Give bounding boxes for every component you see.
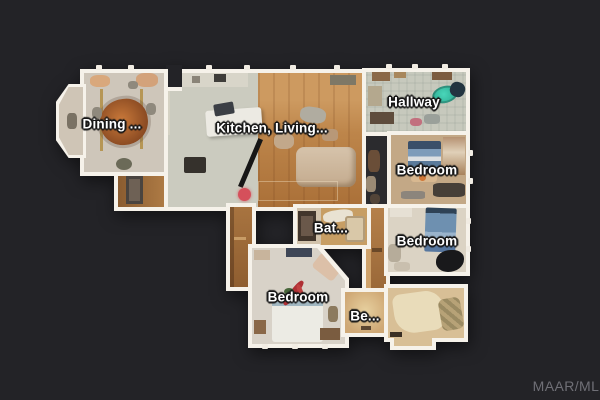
room-label-bedroom-mid-right[interactable]: Bedroom	[397, 234, 458, 249]
chair	[328, 306, 338, 322]
rug	[391, 289, 446, 336]
peach-rug	[90, 75, 110, 87]
chair	[146, 103, 156, 115]
floorplan: Dining ... Kitchen, Living... Hallway Be…	[0, 0, 600, 400]
stove	[184, 157, 206, 173]
window-tick	[96, 65, 102, 70]
threshold	[372, 248, 382, 252]
window-tick	[412, 64, 418, 69]
window-tick	[468, 150, 473, 156]
window-tick	[442, 64, 448, 69]
gray-item	[424, 114, 440, 124]
peach-rug	[136, 73, 158, 87]
debris	[368, 150, 380, 172]
window-tick	[262, 344, 268, 349]
cabinet	[368, 86, 382, 106]
window-tick	[128, 65, 134, 70]
kitchen-floor	[162, 73, 258, 207]
window-tick	[322, 344, 328, 349]
window-tick	[244, 65, 250, 70]
shelf	[394, 72, 406, 78]
bottom-right-room-stub	[390, 338, 436, 350]
window-tick	[206, 65, 212, 70]
window-tick	[292, 344, 298, 349]
corridor-shadow	[230, 207, 234, 287]
debris	[370, 194, 380, 204]
watermark: MAAR/MLS	[533, 378, 600, 394]
bay-floor	[59, 87, 83, 155]
window-tick	[468, 178, 473, 184]
rug-outline	[258, 181, 338, 201]
runner	[401, 191, 425, 199]
threshold	[361, 326, 371, 330]
pink-item	[410, 118, 422, 126]
window-tick	[466, 246, 471, 252]
dining-bay-window[interactable]	[56, 84, 86, 158]
room-label-hallway[interactable]: Hallway	[388, 95, 440, 110]
vanity-top	[301, 216, 313, 236]
appliance	[214, 74, 226, 82]
wall-notch	[166, 65, 182, 91]
chair	[128, 81, 138, 89]
floorplan-view: Dining ... Kitchen, Living... Hallway Be…	[0, 0, 600, 400]
debris	[366, 176, 376, 192]
room-label-bedroom-partial[interactable]: Be...	[350, 309, 380, 324]
rug	[394, 262, 410, 271]
dresser-dark	[286, 248, 312, 257]
window-tick	[290, 65, 296, 70]
room-label-bathroom[interactable]: Bat...	[314, 221, 348, 236]
shelf	[432, 72, 452, 80]
plant	[116, 158, 132, 170]
scan-hole	[436, 250, 464, 272]
room-label-dining[interactable]: Dining ...	[83, 117, 142, 132]
window-tick	[334, 65, 340, 70]
dresser	[254, 250, 270, 260]
stairwell-inner	[129, 179, 140, 201]
dresser	[390, 208, 412, 217]
room-label-kitchen-living[interactable]: Kitchen, Living...	[216, 121, 328, 136]
room-label-bedroom-upper-right[interactable]: Bedroom	[397, 163, 458, 178]
shelf	[372, 72, 390, 81]
current-position-dot	[238, 188, 251, 201]
nightstand	[320, 328, 340, 340]
tv-cabinet	[330, 75, 356, 85]
dresser	[370, 112, 394, 124]
room-label-bedroom-bottom[interactable]: Bedroom	[268, 290, 329, 305]
nightstand	[254, 320, 266, 334]
appliance	[192, 76, 200, 83]
threshold	[390, 332, 402, 337]
threshold	[234, 237, 246, 240]
window-tick	[466, 218, 471, 224]
room-bottom-right[interactable]	[384, 284, 468, 342]
dark-rug	[433, 183, 465, 197]
corner-floor	[311, 252, 343, 282]
wood-streaks	[437, 296, 464, 331]
window-tick	[386, 64, 392, 69]
side-table	[67, 113, 77, 129]
